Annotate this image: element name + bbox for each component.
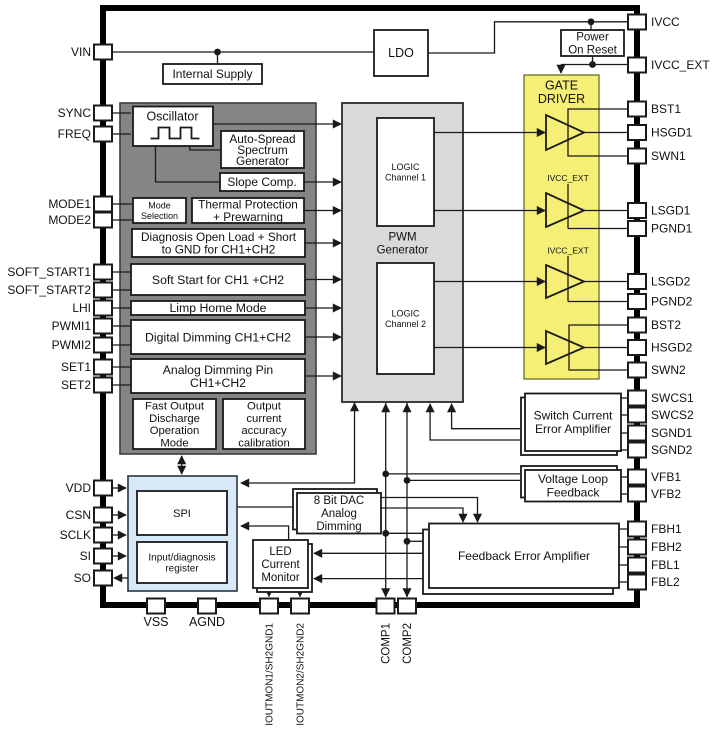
svg-text:Generator: Generator xyxy=(377,245,429,257)
svg-text:Error Amplifier: Error Amplifier xyxy=(535,422,611,436)
svg-text:IOUTMON1/SH2GND1: IOUTMON1/SH2GND1 xyxy=(265,623,276,726)
svg-text:FREQ: FREQ xyxy=(58,127,91,141)
svg-text:LDO: LDO xyxy=(388,46,414,60)
svg-text:SOFT_START2: SOFT_START2 xyxy=(7,283,91,297)
svg-text:On Reset: On Reset xyxy=(568,45,617,57)
svg-text:FBH2: FBH2 xyxy=(651,540,682,554)
svg-text:SET1: SET1 xyxy=(61,360,91,374)
svg-text:COMP2: COMP2 xyxy=(402,623,414,664)
svg-text:Current: Current xyxy=(261,559,300,571)
svg-text:PGND1: PGND1 xyxy=(651,222,693,236)
svg-text:SPI: SPI xyxy=(173,508,191,520)
svg-text:PWMI1: PWMI1 xyxy=(52,319,92,333)
svg-text:LOGIC: LOGIC xyxy=(391,162,420,172)
svg-text:HSGD2: HSGD2 xyxy=(651,341,693,355)
svg-text:Analog Dimming Pin: Analog Dimming Pin xyxy=(163,363,273,377)
svg-text:FBL1: FBL1 xyxy=(651,558,680,572)
svg-text:COMP1: COMP1 xyxy=(381,623,393,664)
svg-text:Feedback Error Amplifier: Feedback Error Amplifier xyxy=(458,549,590,563)
svg-text:SCLK: SCLK xyxy=(60,528,91,542)
svg-text:SO: SO xyxy=(74,571,91,585)
svg-text:Operation: Operation xyxy=(150,425,200,437)
svg-text:DRIVER: DRIVER xyxy=(538,92,585,106)
svg-text:SET2: SET2 xyxy=(61,378,91,392)
svg-text:Voltage Loop: Voltage Loop xyxy=(538,472,608,486)
svg-text:CSN: CSN xyxy=(66,508,91,522)
svg-text:8 Bit DAC: 8 Bit DAC xyxy=(314,495,365,507)
svg-text:Feedback: Feedback xyxy=(547,485,601,499)
svg-text:Soft Start for CH1 +CH2: Soft Start for CH1 +CH2 xyxy=(152,273,284,287)
svg-text:VFB1: VFB1 xyxy=(651,470,681,484)
svg-text:IVCC: IVCC xyxy=(651,15,680,29)
svg-text:PWM: PWM xyxy=(388,232,416,244)
svg-text:SGND2: SGND2 xyxy=(651,443,693,457)
svg-text:Limp Home Mode: Limp Home Mode xyxy=(169,301,266,315)
svg-text:+ Prewarning: + Prewarning xyxy=(213,210,283,224)
svg-text:IVCC_EXT: IVCC_EXT xyxy=(547,246,589,256)
svg-text:VDD: VDD xyxy=(66,481,92,495)
svg-text:LHI: LHI xyxy=(72,301,91,315)
svg-text:Mode: Mode xyxy=(148,200,171,210)
svg-text:accuracy: accuracy xyxy=(241,425,287,437)
svg-text:calibration: calibration xyxy=(238,437,290,449)
svg-text:AGND: AGND xyxy=(189,615,225,629)
svg-text:MODE2: MODE2 xyxy=(48,213,91,227)
svg-text:LOGIC: LOGIC xyxy=(391,308,420,318)
svg-text:HSGD1: HSGD1 xyxy=(651,126,693,140)
svg-text:Internal Supply: Internal Supply xyxy=(172,67,252,81)
svg-text:PGND2: PGND2 xyxy=(651,295,693,309)
svg-text:Channel 1: Channel 1 xyxy=(385,172,426,182)
svg-text:FBL2: FBL2 xyxy=(651,575,680,589)
svg-text:to GND for CH1+CH2: to GND for CH1+CH2 xyxy=(162,242,276,256)
svg-text:Oscillator: Oscillator xyxy=(146,110,198,124)
svg-text:register: register xyxy=(165,564,199,575)
svg-text:MODE1: MODE1 xyxy=(48,197,91,211)
svg-text:SOFT_START1: SOFT_START1 xyxy=(7,265,91,279)
svg-text:Monitor: Monitor xyxy=(261,572,300,584)
svg-text:SYNC: SYNC xyxy=(58,106,92,120)
svg-text:IVCC_EXT: IVCC_EXT xyxy=(547,173,589,183)
svg-text:BST2: BST2 xyxy=(651,318,681,332)
svg-text:LSGD1: LSGD1 xyxy=(651,204,691,218)
svg-text:Generator: Generator xyxy=(236,154,289,168)
svg-text:SWN1: SWN1 xyxy=(651,149,686,163)
svg-text:Output: Output xyxy=(247,401,282,413)
svg-text:FBH1: FBH1 xyxy=(651,522,682,536)
svg-text:Slope Comp.: Slope Comp. xyxy=(227,175,296,189)
svg-text:PWMI2: PWMI2 xyxy=(52,338,92,352)
svg-text:current: current xyxy=(246,413,282,425)
svg-text:Switch Current: Switch Current xyxy=(534,408,613,422)
svg-text:Dimming: Dimming xyxy=(316,521,361,533)
svg-text:Digital Dimming CH1+CH2: Digital Dimming CH1+CH2 xyxy=(145,331,291,345)
svg-text:Fast Output: Fast Output xyxy=(145,401,205,413)
svg-text:SI: SI xyxy=(80,549,91,563)
svg-text:Input/diagnosis: Input/diagnosis xyxy=(148,553,215,564)
svg-text:Selection: Selection xyxy=(141,211,178,221)
svg-text:IVCC_EXT: IVCC_EXT xyxy=(651,58,710,72)
svg-text:Analog: Analog xyxy=(321,508,357,520)
svg-text:IOUTMON2/SH2GND2: IOUTMON2/SH2GND2 xyxy=(296,623,307,726)
svg-text:GATE: GATE xyxy=(545,79,578,93)
svg-text:Discharge: Discharge xyxy=(149,413,200,425)
svg-text:Power: Power xyxy=(576,32,609,44)
svg-text:Mode: Mode xyxy=(160,437,188,449)
svg-text:SWCS2: SWCS2 xyxy=(651,408,694,422)
svg-text:VSS: VSS xyxy=(143,615,168,629)
svg-text:BST1: BST1 xyxy=(651,102,681,116)
svg-text:Channel 2: Channel 2 xyxy=(385,319,426,329)
svg-text:VIN: VIN xyxy=(71,45,91,59)
svg-text:SWCS1: SWCS1 xyxy=(651,391,694,405)
svg-text:SGND1: SGND1 xyxy=(651,426,693,440)
svg-text:SWN2: SWN2 xyxy=(651,363,686,377)
svg-text:LSGD2: LSGD2 xyxy=(651,275,691,289)
svg-text:VFB2: VFB2 xyxy=(651,487,681,501)
svg-text:LED: LED xyxy=(269,546,291,558)
svg-text:CH1+CH2: CH1+CH2 xyxy=(190,376,246,390)
